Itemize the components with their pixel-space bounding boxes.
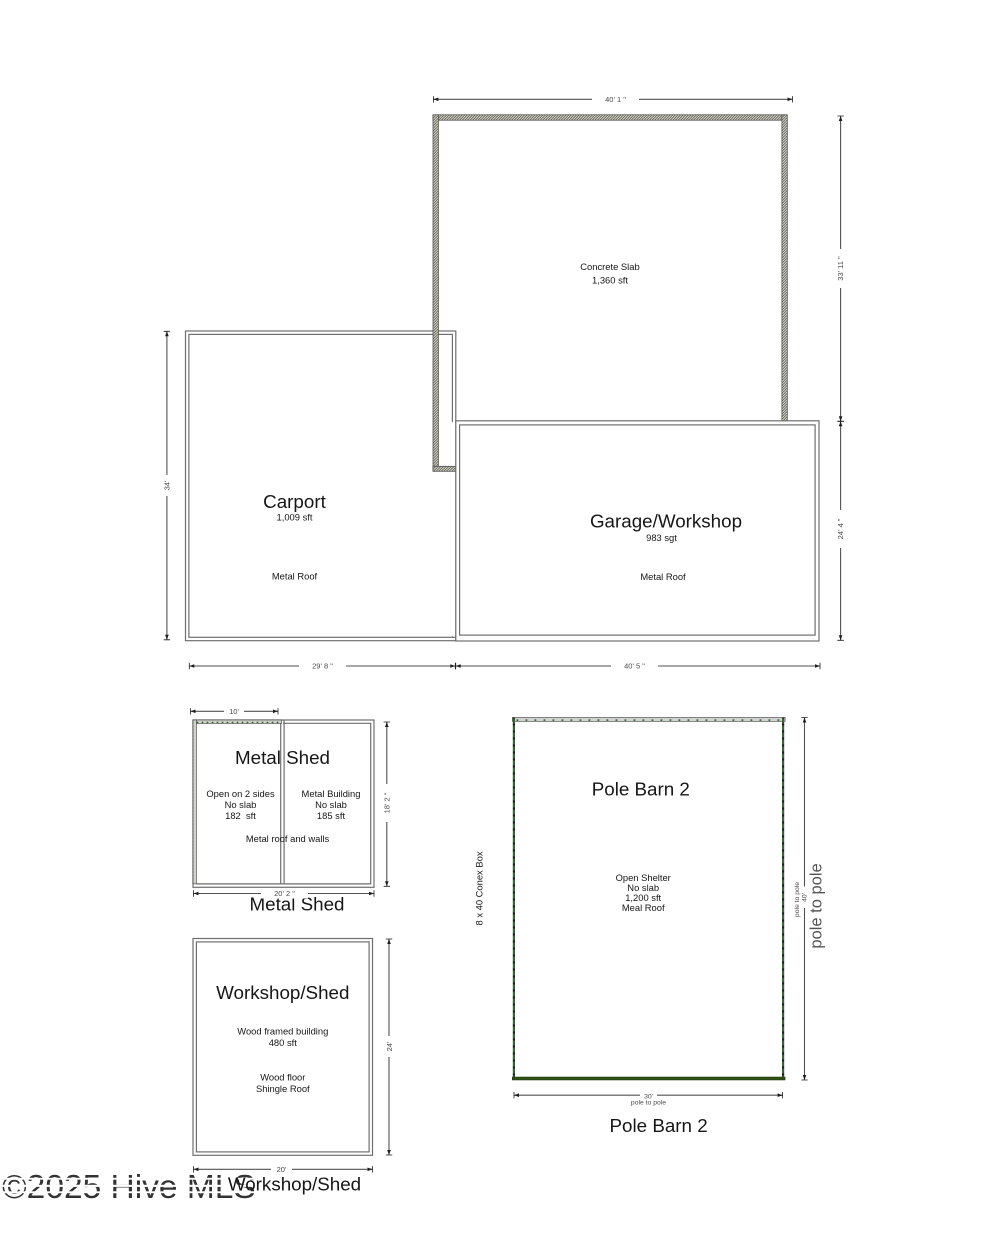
svg-text:No slab: No slab	[225, 799, 257, 810]
svg-text:33' 11 ": 33' 11 "	[836, 256, 845, 281]
svg-text:Metal Shed: Metal Shed	[235, 747, 330, 768]
svg-text:983 sgt: 983 sgt	[646, 532, 677, 543]
svg-text:40' 1 ": 40' 1 "	[605, 95, 626, 104]
svg-text:40' 5 ": 40' 5 "	[624, 662, 645, 671]
svg-text:480 sft: 480 sft	[269, 1037, 298, 1048]
svg-text:Wood floor: Wood floor	[260, 1072, 305, 1083]
svg-text:29' 8 ": 29' 8 "	[312, 662, 333, 671]
svg-text:Wood framed building: Wood framed building	[237, 1026, 328, 1037]
svg-text:pole to pole: pole to pole	[794, 882, 801, 917]
svg-text:20' 2 ": 20' 2 "	[274, 889, 295, 898]
svg-text:Garage/Workshop: Garage/Workshop	[590, 511, 742, 532]
svg-text:Carport: Carport	[263, 491, 326, 512]
svg-text:Open on 2 sides: Open on 2 sides	[206, 788, 275, 799]
svg-text:24' 4 ": 24' 4 "	[836, 518, 845, 539]
svg-text:©2025 Hive MLS: ©2025 Hive MLS	[2, 1169, 256, 1206]
svg-text:Concrete Slab: Concrete Slab	[580, 261, 639, 272]
svg-text:Shingle Roof: Shingle Roof	[256, 1083, 310, 1094]
svg-text:182 sft: 182 sft	[225, 810, 256, 821]
svg-text:Metal Roof: Metal Roof	[640, 571, 686, 582]
svg-text:24': 24'	[385, 1041, 394, 1051]
svg-text:Pole Barn 2: Pole Barn 2	[592, 779, 690, 800]
svg-text:10': 10'	[229, 707, 239, 716]
svg-text:20': 20'	[277, 1165, 287, 1174]
svg-text:1,360 sft: 1,360 sft	[592, 275, 628, 286]
svg-text:pole to pole: pole to pole	[631, 1099, 666, 1106]
svg-text:Workshop/Shed: Workshop/Shed	[216, 982, 349, 1003]
svg-text:18' 2 ": 18' 2 "	[383, 792, 392, 813]
svg-text:1,009 sft: 1,009 sft	[277, 512, 313, 523]
svg-text:34': 34'	[162, 480, 171, 490]
svg-text:185 sft: 185 sft	[317, 810, 346, 821]
svg-text:Meal Roof: Meal Roof	[622, 902, 665, 913]
svg-text:Workshop/Shed: Workshop/Shed	[228, 1174, 361, 1195]
svg-text:Metal Building: Metal Building	[302, 788, 361, 799]
svg-text:pole to pole: pole to pole	[808, 863, 826, 948]
svg-text:Metal Roof: Metal Roof	[272, 571, 318, 582]
svg-text:8 x 40 Conex Box: 8 x 40 Conex Box	[474, 851, 485, 925]
svg-text:No slab: No slab	[315, 799, 347, 810]
svg-text:Metal roof and walls: Metal roof and walls	[246, 833, 330, 844]
svg-text:Pole Barn 2: Pole Barn 2	[610, 1115, 708, 1136]
